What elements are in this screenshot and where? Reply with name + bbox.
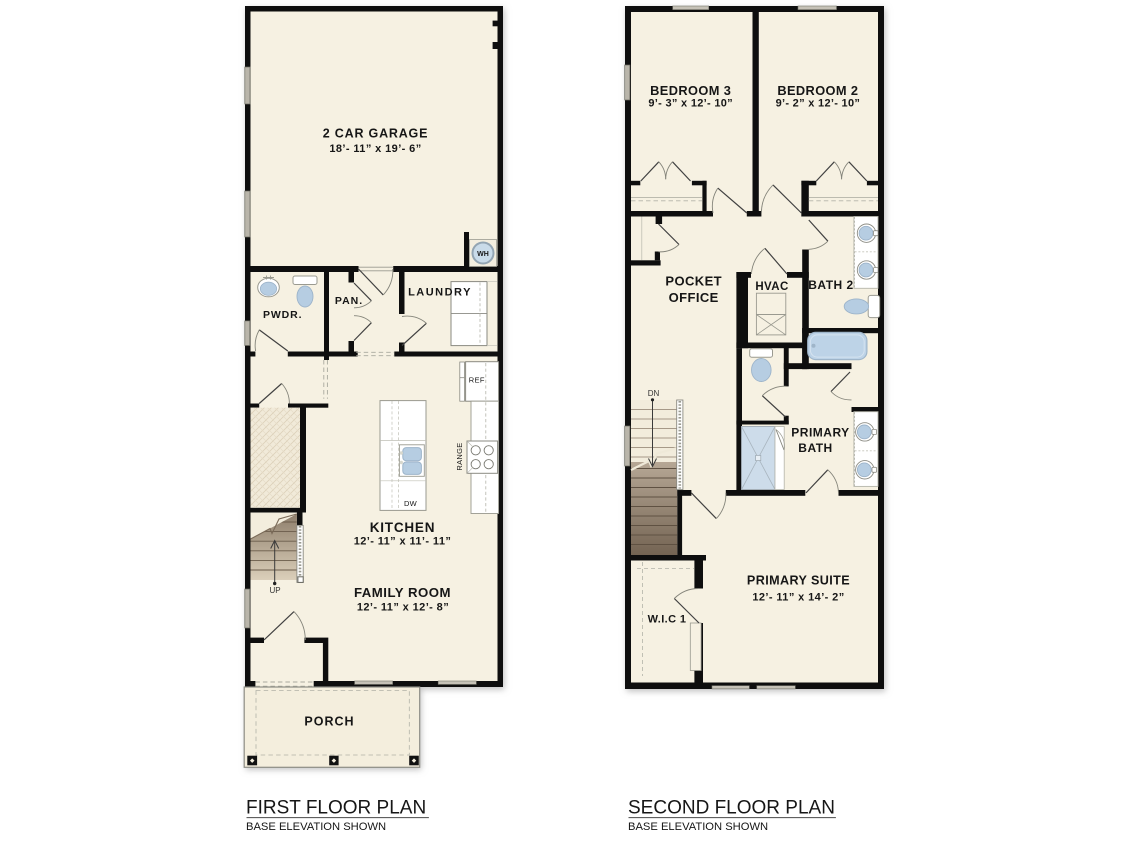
svg-text:UP: UP (269, 586, 280, 595)
svg-text:DN: DN (648, 389, 660, 398)
svg-text:LAUNDRY: LAUNDRY (408, 287, 472, 299)
svg-text:BEDROOM 3: BEDROOM 3 (650, 83, 731, 98)
svg-text:PORCH: PORCH (304, 715, 354, 729)
svg-text:POCKET: POCKET (665, 274, 722, 289)
svg-text:12’- 11” x 12’- 8”: 12’- 11” x 12’- 8” (357, 602, 449, 614)
svg-text:12’- 11” x 11’- 11”: 12’- 11” x 11’- 11” (354, 536, 452, 548)
svg-text:2 CAR GARAGE: 2 CAR GARAGE (323, 127, 428, 141)
svg-text:WH: WH (477, 251, 489, 258)
svg-text:PAN.: PAN. (335, 295, 363, 307)
svg-text:KITCHEN: KITCHEN (370, 520, 436, 535)
svg-text:PWDR.: PWDR. (263, 309, 303, 321)
svg-text:FAMILY ROOM: FAMILY ROOM (354, 585, 451, 600)
svg-text:W.I.C 1: W.I.C 1 (648, 614, 687, 626)
svg-text:BASE ELEVATION SHOWN: BASE ELEVATION SHOWN (246, 821, 386, 833)
svg-text:BASE ELEVATION SHOWN: BASE ELEVATION SHOWN (628, 821, 768, 833)
svg-text:9’- 2” x 12’- 10”: 9’- 2” x 12’- 10” (776, 98, 861, 110)
svg-text:OFFICE: OFFICE (669, 290, 719, 305)
svg-text:PRIMARY: PRIMARY (791, 426, 849, 440)
svg-text:HVAC: HVAC (755, 281, 788, 293)
svg-text:FIRST FLOOR PLAN: FIRST FLOOR PLAN (246, 798, 426, 819)
svg-text:18’- 11” x 19’- 6”: 18’- 11” x 19’- 6” (329, 143, 421, 155)
svg-text:BATH: BATH (798, 441, 832, 455)
svg-text:BATH 2: BATH 2 (808, 278, 853, 292)
svg-text:RANGE: RANGE (455, 442, 464, 470)
svg-text:PRIMARY SUITE: PRIMARY SUITE (747, 574, 850, 588)
svg-text:REF: REF (469, 375, 485, 384)
svg-text:12’- 11” x 14’- 2”: 12’- 11” x 14’- 2” (752, 592, 844, 604)
svg-text:SECOND FLOOR PLAN: SECOND FLOOR PLAN (628, 798, 835, 819)
svg-text:DW: DW (404, 499, 418, 508)
svg-text:9’- 3” x 12’- 10”: 9’- 3” x 12’- 10” (648, 98, 733, 110)
svg-text:BEDROOM 2: BEDROOM 2 (777, 83, 858, 98)
